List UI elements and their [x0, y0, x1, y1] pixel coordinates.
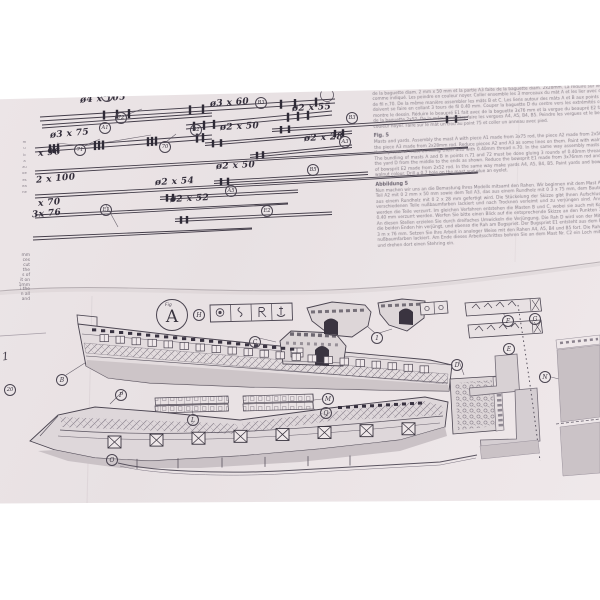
left-margin-tiny-fragment: ne: [20, 189, 29, 195]
measurement-label: ø2 x 52: [170, 193, 210, 205]
part-circle-b5: B5: [101, 90, 113, 102]
instruction-text-block: Mâts et vergues. Assembler le mât A avec…: [372, 77, 600, 253]
part-circle-b3: B3: [346, 112, 358, 124]
ornament-strip-f: [465, 298, 542, 316]
measurement-label: ø2 x 50: [216, 160, 256, 172]
left-margin-fragments: mmcescutthes ofit on1mmi then alland: [2, 254, 30, 303]
part-circle-m: M: [322, 393, 334, 405]
part-circle-f: F: [502, 315, 514, 327]
instruction-sheet-photo: ø4 x 105 ø3 x 60 ø2 x 55 ø3 x 75 ø2 x 50…: [0, 84, 600, 506]
part-circle-d: D: [451, 359, 463, 371]
left-margin-tiny-fragments: mubazuoeeseane: [20, 139, 29, 195]
part-circle-b3: B3: [255, 97, 267, 109]
part-circle-q: Q: [320, 407, 332, 419]
part-circle-p: P: [115, 389, 127, 401]
part-circle-b: B: [56, 374, 68, 386]
part-circle-b5: B5: [307, 164, 319, 176]
part-circle-a3: A3: [339, 136, 351, 148]
left-margin-fragment: and: [2, 298, 30, 303]
measurement-label: ø2 x 55: [292, 102, 332, 114]
part-circle-e2: E2: [261, 205, 273, 217]
ornament-strip-h: [210, 303, 293, 322]
point-circle-70: 70: [159, 141, 171, 153]
part-circle-a5: A5: [225, 185, 237, 197]
point-circle-71: 71: [74, 144, 86, 156]
measurement-label: ø2 x 54: [155, 176, 195, 188]
part-circle-1: 1: [371, 332, 383, 344]
measurement-label: ø2 x 28: [304, 132, 344, 144]
ornament-strip-small: [420, 301, 448, 315]
ornate-stern-panel: [450, 376, 504, 434]
point-circle-72: 72: [115, 112, 127, 124]
deck-strips: [155, 394, 314, 413]
fig-a-marker: Fig A: [156, 299, 188, 331]
part-circle-20: 20: [4, 384, 16, 396]
fig5-heading: Fig. 5: [374, 133, 389, 139]
part-circle-l: L: [187, 414, 199, 426]
stern-window: [399, 309, 413, 326]
part-circle-e: E: [503, 343, 515, 355]
part-circle-e1: E1: [100, 204, 112, 216]
part-circle-g: G: [529, 313, 541, 325]
instruction-text-french: Mâts et vergues. Assembler le mât A avec…: [372, 77, 600, 130]
part-circle-a1: A1: [99, 122, 111, 134]
stern-window: [324, 319, 338, 336]
screenshot-canvas: { "sheet_top": { "measurements": { "m1":…: [0, 0, 600, 600]
measurement-label: ø2 x 50: [220, 121, 260, 133]
part-circle-b2: B2: [190, 124, 202, 136]
part-circle-c: C: [249, 336, 261, 348]
abbildung5-heading: Abbildung 5: [375, 181, 408, 187]
instruction-text-german: Nun machen wir uns an die Bemastung Ihre…: [376, 180, 600, 249]
instruction-text-english: Masts and yards. Assembly the mast A wit…: [374, 132, 600, 179]
part-circle-o: O: [106, 454, 118, 466]
part-circle-n: N: [539, 371, 551, 383]
part-circle-h: H: [193, 309, 205, 321]
measurement-label: x 96: [38, 147, 61, 159]
fig-label-big: A: [157, 307, 187, 327]
stern-quarter-pieces: [307, 299, 425, 337]
